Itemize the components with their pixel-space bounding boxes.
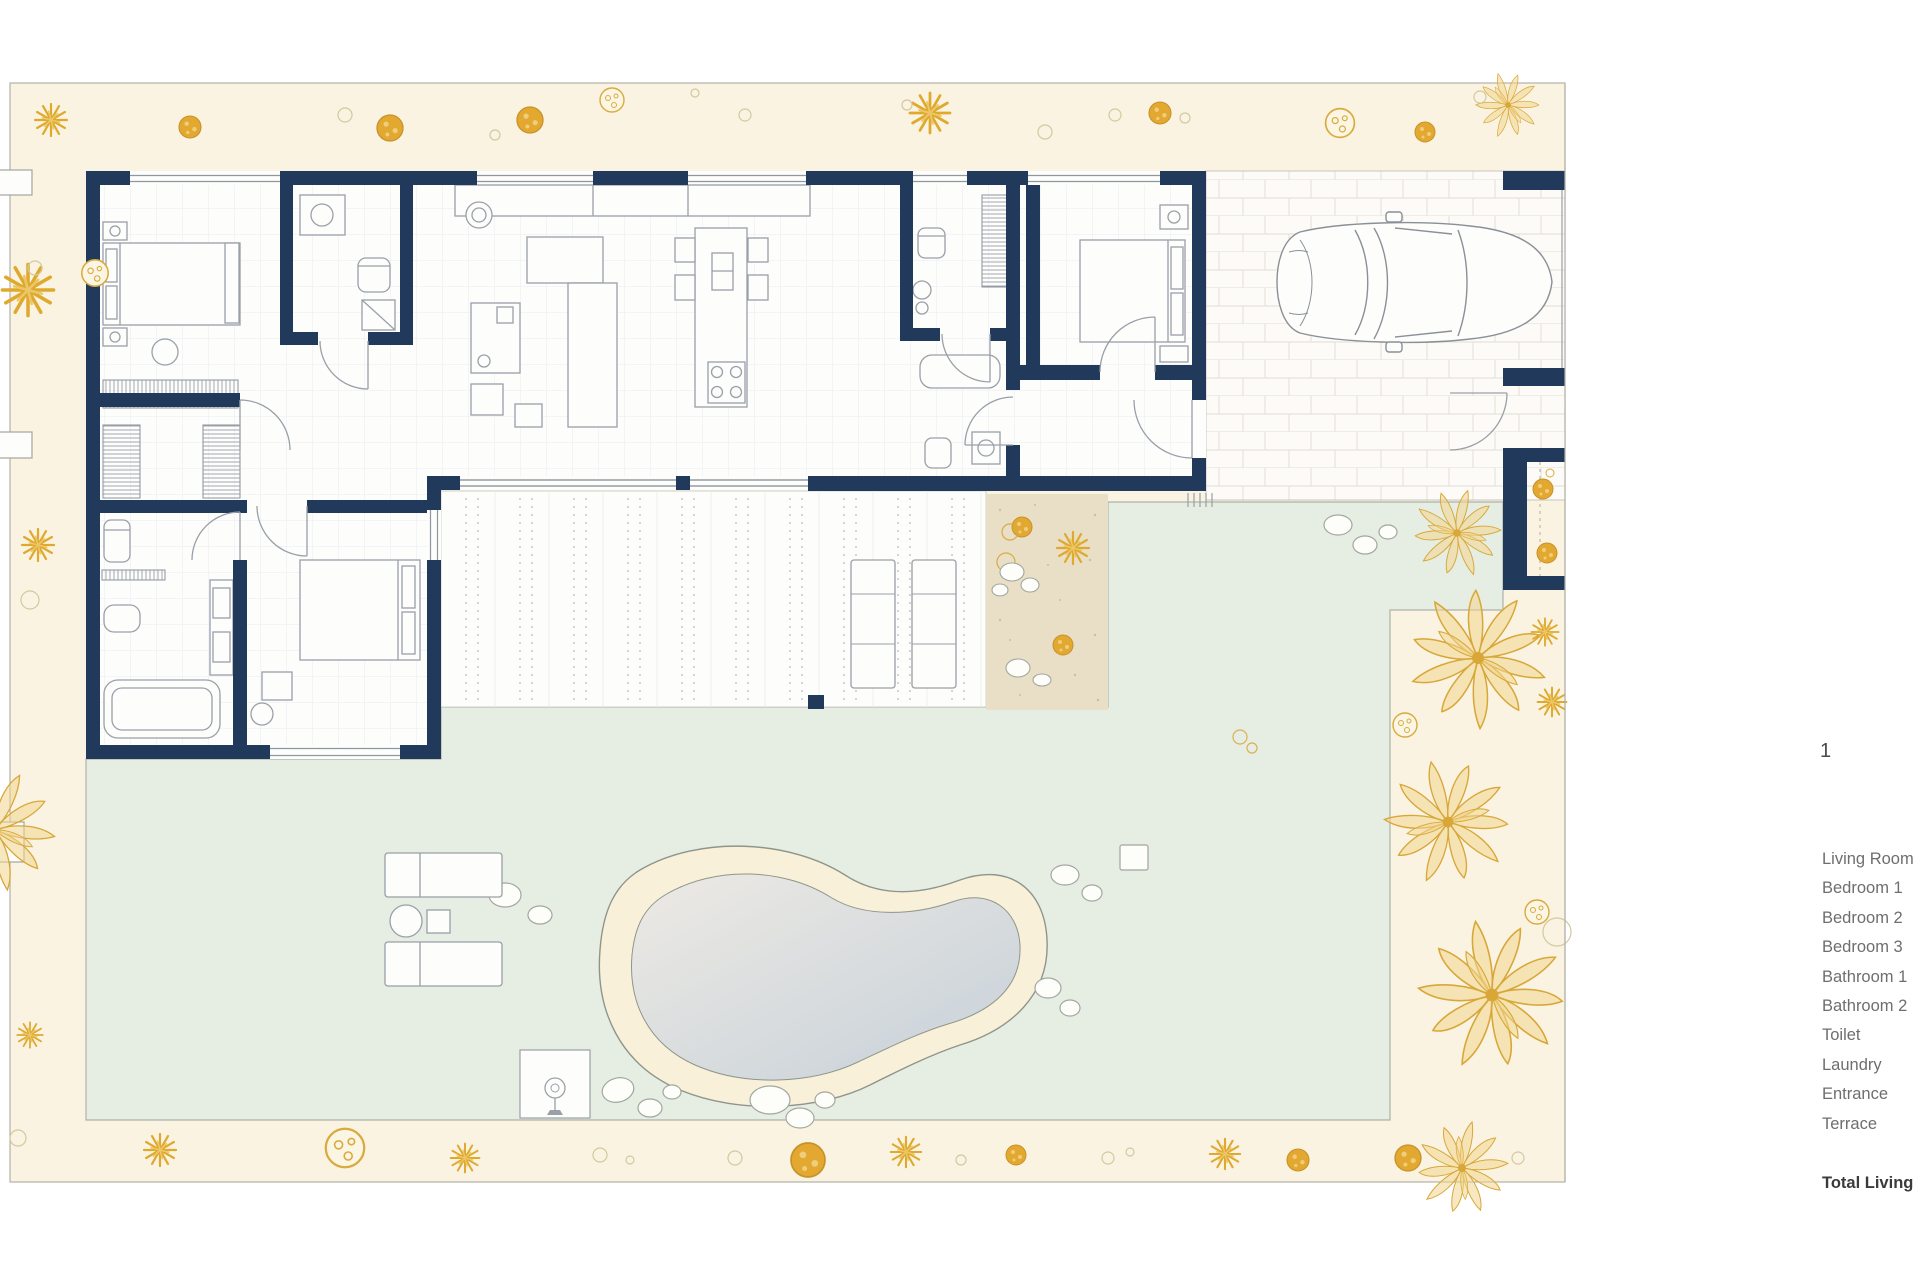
shrub-icon: [1287, 1149, 1309, 1171]
shrub-outline-icon: [1326, 109, 1355, 138]
side-table: [390, 905, 422, 937]
fence-post: [1503, 368, 1565, 386]
shrub-outline-icon: [82, 260, 108, 286]
shrub-icon: [517, 107, 543, 133]
legend-item-entrance: Entrance: [1822, 1080, 1920, 1109]
legend-item-bedroom-1: Bedroom 1: [1822, 874, 1920, 903]
legend-item-bedroom-2: Bedroom 2: [1822, 904, 1920, 933]
shrub-outline-icon: [1393, 713, 1417, 737]
outdoor-shower-icon: [520, 1050, 590, 1118]
floor-plan-drawing: [0, 0, 1920, 1280]
shrub-outline-icon: [326, 1129, 364, 1167]
side-table: [427, 910, 450, 933]
floor-plan-page: 1 Living Room Bedroom 1 Bedroom 2 Bedroo…: [0, 0, 1920, 1280]
legend-item-bedroom-3: Bedroom 3: [1822, 933, 1920, 962]
sun-lounger: [912, 560, 956, 688]
sun-lounger: [851, 560, 895, 688]
shrub-icon: [377, 115, 403, 141]
shrub-icon: [1012, 517, 1032, 537]
sand-patch: [986, 494, 1108, 710]
shrub-icon: [1395, 1145, 1421, 1171]
shrub-icon: [791, 1143, 825, 1177]
fence-post: [1503, 171, 1565, 190]
shrub-icon: [179, 116, 201, 138]
shrub-icon: [1149, 102, 1171, 124]
legend-item-toilet: Toilet: [1822, 1021, 1920, 1050]
legend-item-bathroom-2: Bathroom 2: [1822, 992, 1920, 1021]
shrub-outline-icon: [600, 88, 624, 112]
legend-item-living-room: Living Room: [1822, 845, 1920, 874]
legend-total-label: Total Living: [1822, 1169, 1920, 1198]
legend-item-laundry: Laundry: [1822, 1051, 1920, 1080]
shrub-icon: [1053, 635, 1073, 655]
pergola-post: [808, 695, 824, 709]
room-legend: Living Room Bedroom 1 Bedroom 2 Bedroom …: [1822, 845, 1920, 1198]
legend-mark: 1: [1820, 740, 1831, 763]
legend-item-bathroom-1: Bathroom 1: [1822, 963, 1920, 992]
shrub-outline-icon: [1525, 900, 1549, 924]
shrub-icon: [1006, 1145, 1026, 1165]
terrace-deck: [441, 491, 986, 709]
shrub-icon: [1415, 122, 1435, 142]
shrub-icon: [1533, 479, 1553, 499]
legend-item-terrace: Terrace: [1822, 1110, 1920, 1139]
shrub-icon: [1537, 543, 1557, 563]
